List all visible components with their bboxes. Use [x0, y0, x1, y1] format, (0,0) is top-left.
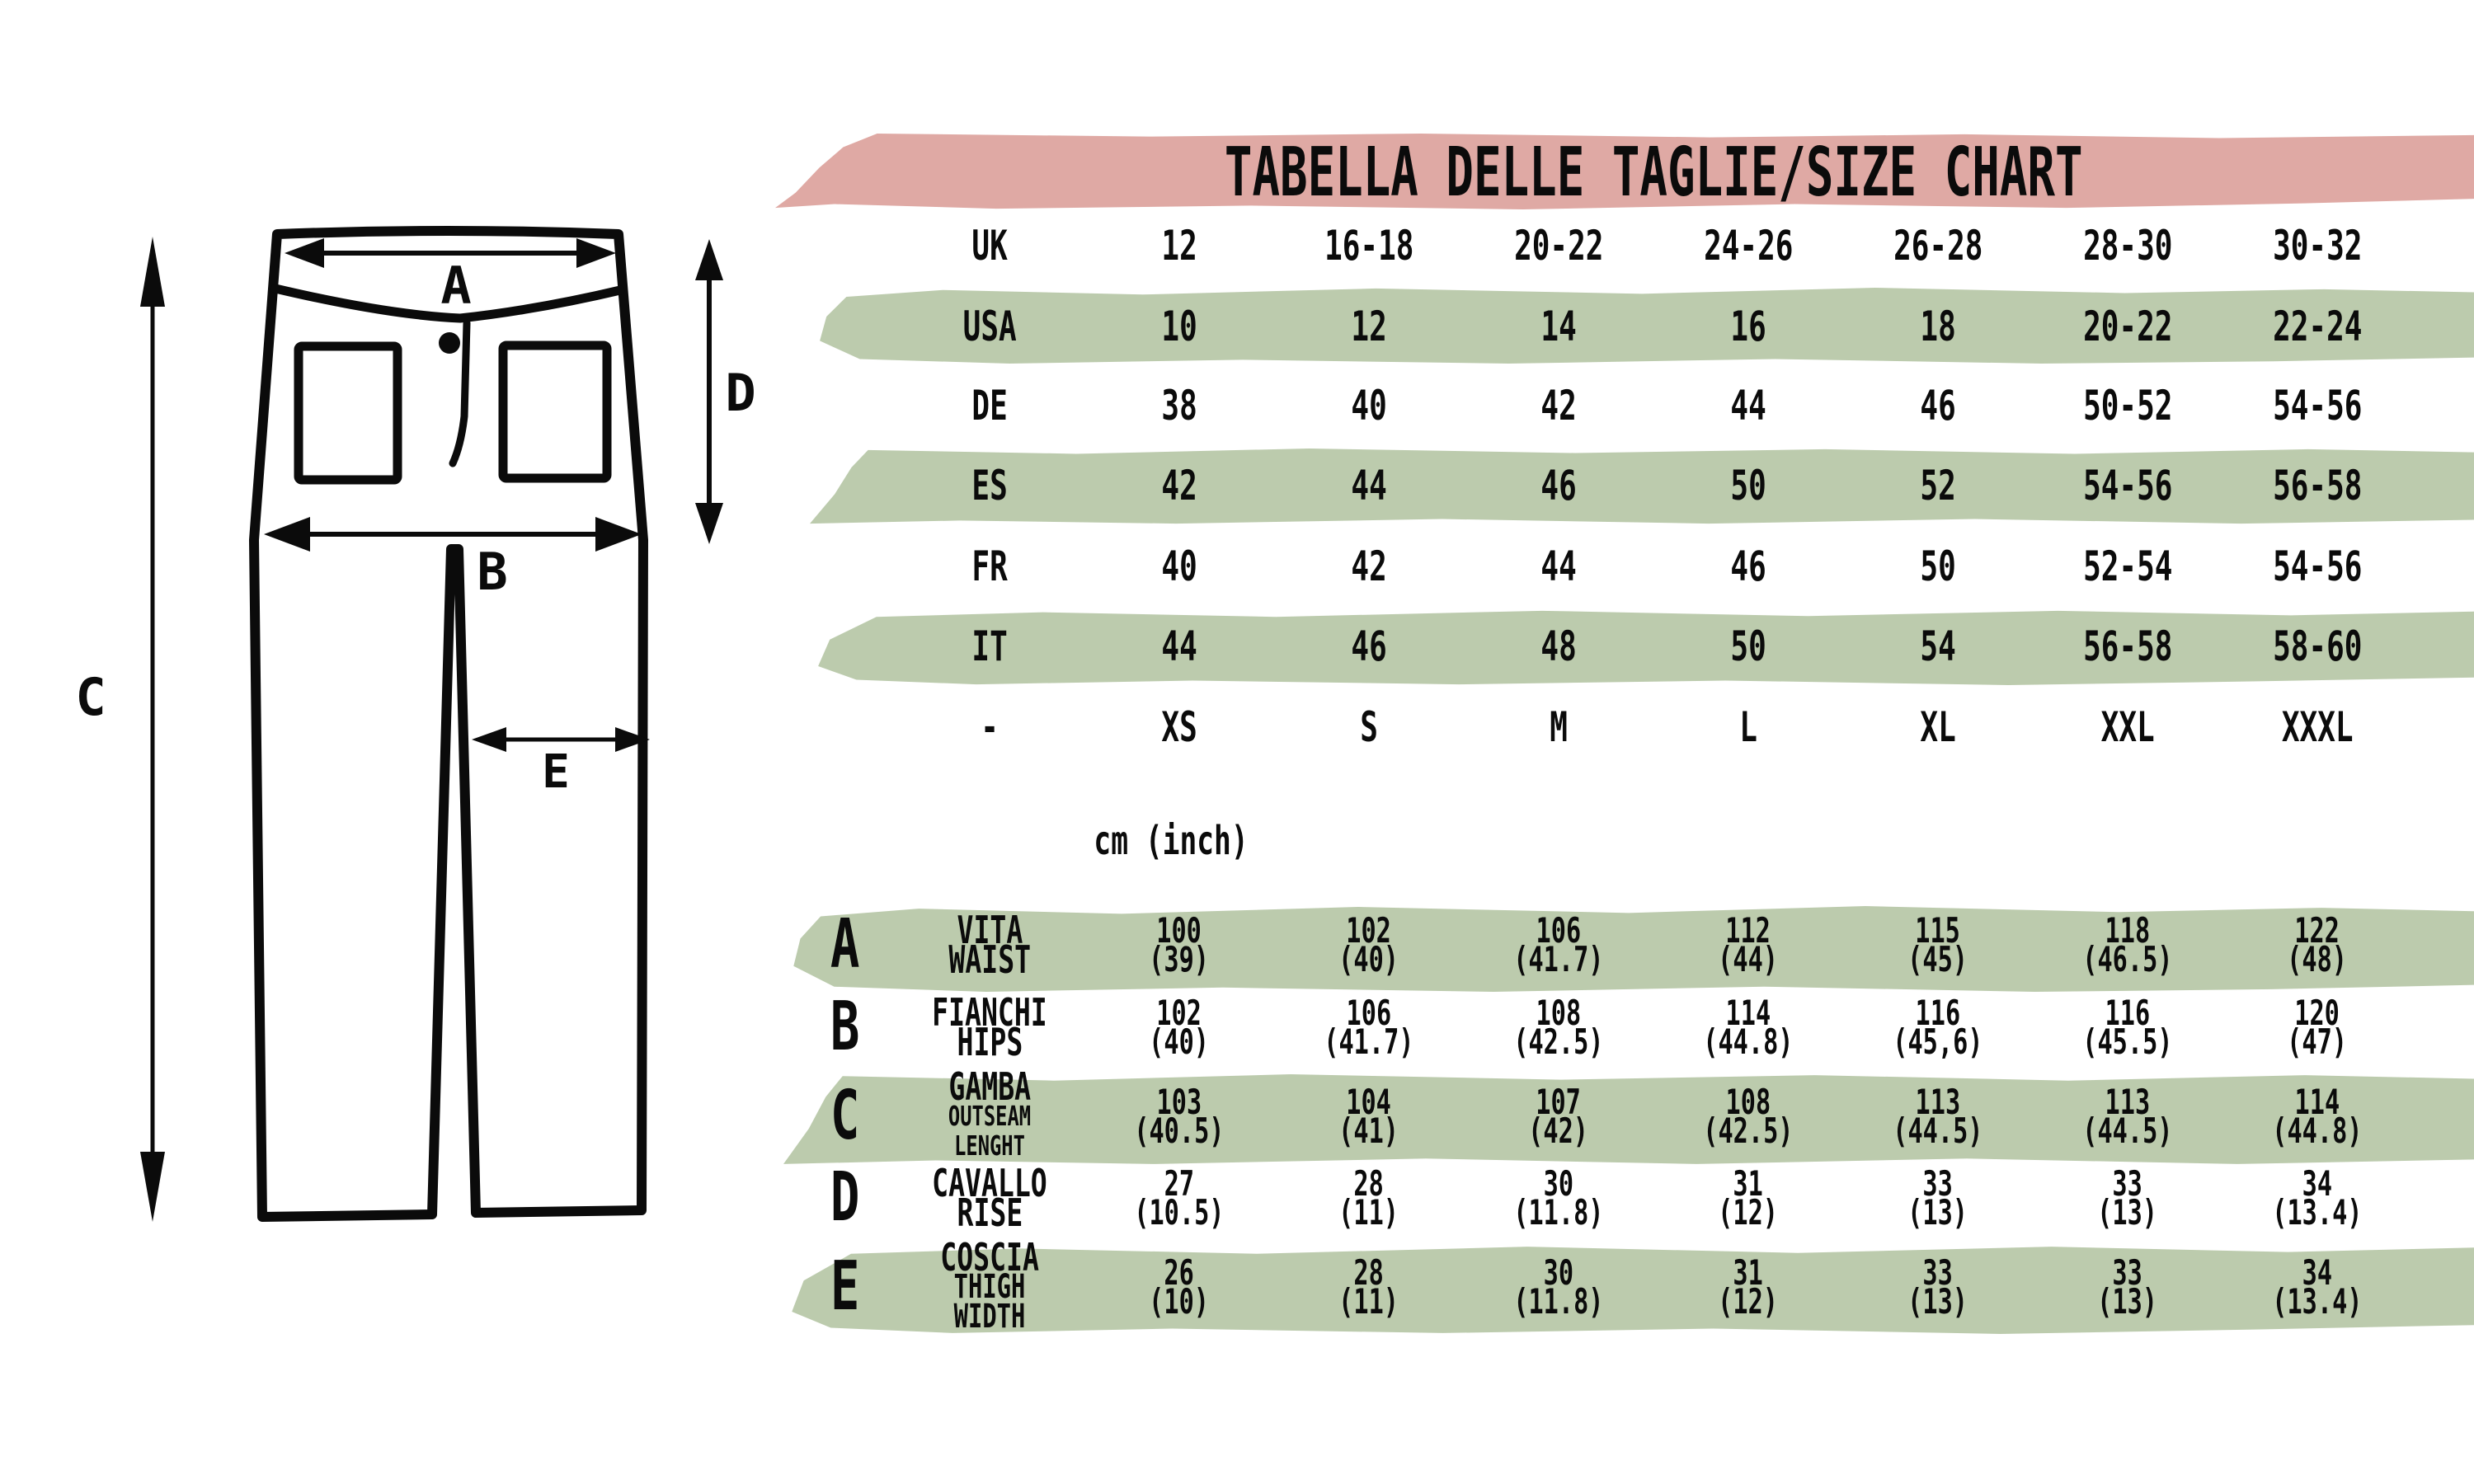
size-cell: 46: [1464, 465, 1653, 506]
measurement-name-en: WAIST: [895, 945, 1084, 974]
measurement-letter: C: [796, 1082, 895, 1150]
measurement-cell: 115 (45): [1843, 916, 2033, 974]
page-title-text: TABELLA DELLE TAGLIE/SIZE CHART: [1225, 134, 2083, 212]
size-cell: 56-58: [2222, 465, 2412, 506]
size-cell: 50: [1653, 465, 1843, 506]
measurement-cell: 122 (48): [2222, 916, 2412, 974]
size-cell: L: [1653, 707, 1843, 748]
measurement-letter: A: [796, 911, 895, 979]
measurement-cell: 116 (45.5): [2033, 998, 2222, 1056]
size-row-it: IT 44 46 48 50 54 56-58 58-60: [895, 622, 2412, 671]
measurement-cell: 34 (13.4): [2222, 1169, 2412, 1227]
measurement-cell: 26 (10): [1084, 1258, 1274, 1316]
measurement-cell: 102 (40): [1084, 998, 1274, 1056]
size-cell: 22-24: [2222, 306, 2412, 347]
measurement-cell: 30 (11.8): [1464, 1258, 1653, 1316]
dimension-label-b: B: [477, 542, 507, 602]
measurement-name: CAVALLO RISE: [895, 1168, 1084, 1228]
size-cell: XXL: [2033, 707, 2222, 748]
units-label: cm (inch): [895, 820, 1447, 862]
size-cell: 20-22: [2033, 306, 2222, 347]
size-cell: 56-58: [2033, 626, 2222, 667]
measurement-cell: 116 (45,6): [1843, 998, 2033, 1056]
size-cell: 40: [1274, 385, 1464, 426]
measurement-cell: 103 (40.5): [1084, 1087, 1274, 1145]
size-cell: 50: [1843, 546, 2033, 587]
measurement-cell: 104 (41): [1274, 1087, 1464, 1145]
measurement-row-thigh: E COSCIA THIGH WIDTH 26 (10) 28 (11) 30 …: [796, 1242, 2412, 1325]
measurement-name: FIANCHI HIPS: [895, 998, 1084, 1057]
measurement-cell: 114 (44.8): [1653, 998, 1843, 1056]
measurement-cell: 106 (41.7): [1274, 998, 1464, 1056]
size-row-de: DE 38 40 42 44 46 50-52 54-56: [895, 381, 2412, 430]
measurement-name: VITA WAIST: [895, 915, 1084, 974]
dimension-label-e: E: [542, 745, 570, 799]
measurement-name-en: RISE: [895, 1198, 1084, 1228]
size-cell: 58-60: [2222, 626, 2412, 667]
measurement-row-waist: A VITA WAIST 100 (39) 102 (40) 106 (41.7…: [796, 904, 2412, 986]
measurement-cell: 112 (44): [1653, 916, 1843, 974]
size-cell: S: [1274, 707, 1464, 748]
measurement-letter: E: [796, 1253, 895, 1321]
size-cell: XXXL: [2222, 707, 2412, 748]
size-cell: 54: [1843, 626, 2033, 667]
size-row-label: IT: [895, 626, 1084, 667]
measurement-cell: 120 (47): [2222, 998, 2412, 1056]
measurement-cell: 31 (12): [1653, 1258, 1843, 1316]
size-row-label: ES: [895, 465, 1084, 506]
size-cell: 38: [1084, 385, 1274, 426]
size-cell: 44: [1274, 465, 1464, 506]
measurement-name: GAMBA OUTSEAM LENGHT: [895, 1072, 1084, 1161]
size-row-fr: FR 40 42 44 46 50 52-54 54-56: [895, 542, 2412, 591]
pants-diagram: A D B C E: [0, 0, 783, 1484]
measurement-cell: 33 (13): [2033, 1258, 2222, 1316]
dimension-label-a: A: [440, 256, 471, 316]
size-cell: 16: [1653, 306, 1843, 347]
measurement-cell: 31 (12): [1653, 1169, 1843, 1227]
size-cell: 42: [1464, 385, 1653, 426]
size-cell: 52-54: [2033, 546, 2222, 587]
pants-button: [439, 332, 460, 354]
size-cell: 16-18: [1274, 225, 1464, 266]
measurement-name-en: HIPS: [895, 1027, 1084, 1057]
measurement-cell: 100 (39): [1084, 916, 1274, 974]
size-cell: 44: [1653, 385, 1843, 426]
measurement-name-it: GAMBA: [895, 1072, 1084, 1101]
measurement-cell: 33 (13): [1843, 1169, 2033, 1227]
dimension-arrow-c: [140, 237, 165, 1222]
measurement-name-en: OUTSEAM LENGHT: [895, 1101, 1084, 1161]
size-cell: 50-52: [2033, 385, 2222, 426]
size-row-label: UK: [895, 225, 1084, 266]
size-cell: XL: [1843, 707, 2033, 748]
measurement-cell: 106 (41.7): [1464, 916, 1653, 974]
measurement-letter: B: [796, 993, 895, 1061]
size-chart-page: { "title": "TABELLA DELLE TAGLIE/SIZE CH…: [0, 0, 2474, 1484]
measurement-row-outseam: C GAMBA OUTSEAM LENGHT 103 (40.5) 104 (4…: [796, 1072, 2412, 1154]
measurement-cell: 33 (13): [2033, 1169, 2222, 1227]
size-row-international: - XS S M L XL XXL XXXL: [895, 702, 2412, 752]
size-cell: 54-56: [2033, 465, 2222, 506]
size-cell: 46: [1274, 626, 1464, 667]
measurement-cell: 28 (11): [1274, 1258, 1464, 1316]
size-cell: 12: [1274, 306, 1464, 347]
size-row-label: USA: [895, 306, 1084, 347]
pants-outline: [254, 231, 643, 1217]
size-cell: 24-26: [1653, 225, 1843, 266]
size-cell: 54-56: [2222, 546, 2412, 587]
size-cell: 18: [1843, 306, 2033, 347]
size-cell: 28-30: [2033, 225, 2222, 266]
size-cell: 40: [1084, 546, 1274, 587]
dimension-label-d: D: [725, 363, 755, 423]
size-cell: 30-32: [2222, 225, 2412, 266]
measurement-row-hips: B FIANCHI HIPS 102 (40) 106 (41.7) 108 (…: [796, 986, 2412, 1068]
size-cell: 46: [1653, 546, 1843, 587]
measurement-letter: D: [796, 1164, 895, 1232]
measurement-cell: 118 (46.5): [2033, 916, 2222, 974]
measurement-cell: 34 (13.4): [2222, 1258, 2412, 1316]
size-cell: 42: [1084, 465, 1274, 506]
measurement-cell: 27 (10.5): [1084, 1169, 1274, 1227]
measurement-cell: 108 (42.5): [1464, 998, 1653, 1056]
size-cell: 52: [1843, 465, 2033, 506]
page-title: TABELLA DELLE TAGLIE/SIZE CHART: [895, 137, 2412, 208]
measurement-cell: 28 (11): [1274, 1169, 1464, 1227]
size-row-label: FR: [895, 546, 1084, 587]
size-cell: 44: [1464, 546, 1653, 587]
size-cell: 12: [1084, 225, 1274, 266]
size-cell: 26-28: [1843, 225, 2033, 266]
measurement-cell: 108 (42.5): [1653, 1087, 1843, 1145]
measurement-cell: 113 (44.5): [2033, 1087, 2222, 1145]
size-cell: 46: [1843, 385, 2033, 426]
measurement-cell: 30 (11.8): [1464, 1169, 1653, 1227]
size-cell: 54-56: [2222, 385, 2412, 426]
size-cell: 20-22: [1464, 225, 1653, 266]
size-row-label: -: [895, 707, 1084, 748]
size-cell: XS: [1084, 707, 1274, 748]
measurement-name-en: THIGH WIDTH: [895, 1272, 1084, 1331]
size-cell: 10: [1084, 306, 1274, 347]
measurement-cell: 113 (44.5): [1843, 1087, 2033, 1145]
size-cell: M: [1464, 707, 1653, 748]
size-cell: 42: [1274, 546, 1464, 587]
size-row-usa: USA 10 12 14 16 18 20-22 22-24: [895, 302, 2412, 351]
measurement-cell: 102 (40): [1274, 916, 1464, 974]
size-row-es: ES 42 44 46 50 52 54-56 56-58: [895, 461, 2412, 510]
size-cell: 44: [1084, 626, 1274, 667]
dimension-arrow-d: [695, 239, 723, 544]
size-cell: 50: [1653, 626, 1843, 667]
size-cell: 48: [1464, 626, 1653, 667]
size-row-uk: UK 12 16-18 20-22 24-26 26-28 28-30 30-3…: [895, 221, 2412, 270]
measurement-name: COSCIA THIGH WIDTH: [895, 1242, 1084, 1331]
measurement-cell: 107 (42): [1464, 1087, 1653, 1145]
dimension-label-c: C: [75, 667, 106, 727]
measurement-cell: 33 (13): [1843, 1258, 2033, 1316]
measurement-cell: 114 (44.8): [2222, 1087, 2412, 1145]
size-cell: 14: [1464, 306, 1653, 347]
measurement-row-rise: D CAVALLO RISE 27 (10.5) 28 (11) 30 (11.…: [796, 1157, 2412, 1239]
size-row-label: DE: [895, 385, 1084, 426]
